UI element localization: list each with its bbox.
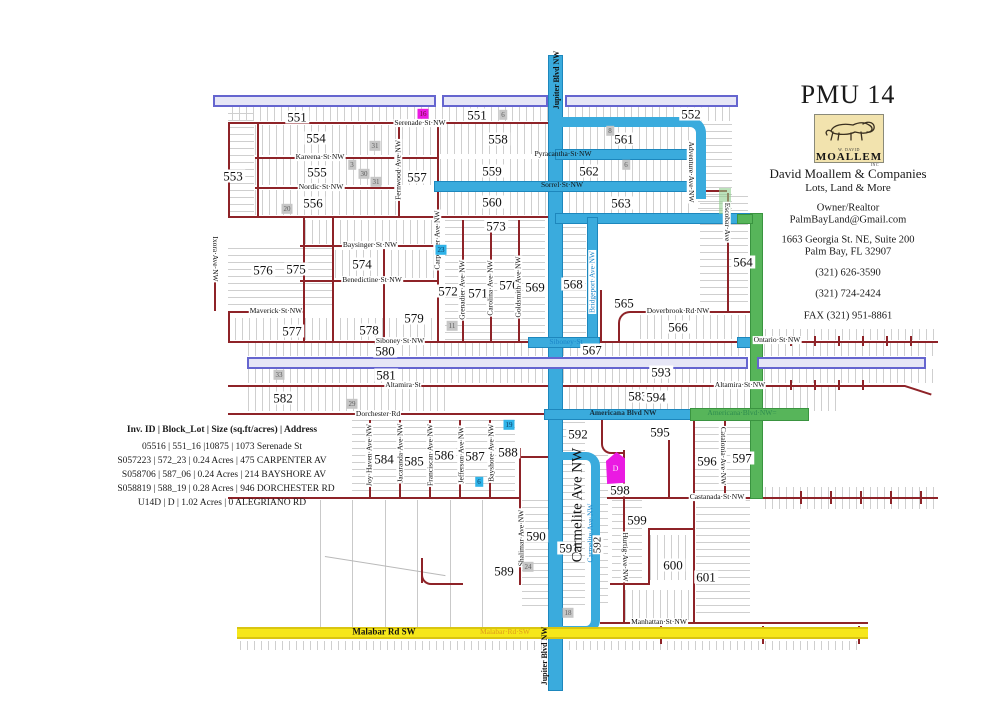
street-label-hurtig: Hurtig·Ave·NW (621, 531, 629, 582)
street-label-benedictine: Benedictine·St·NW (341, 276, 403, 284)
street-label-catalonia: Catalonia·Ave·NW (719, 426, 727, 486)
lot-marker: 18 (563, 608, 574, 618)
road-tick (830, 491, 832, 504)
road-tick (862, 336, 864, 346)
lot-marker: 11 (447, 321, 458, 331)
lot-marker: 8 (606, 126, 614, 136)
road-599-loop-top (648, 528, 693, 530)
road-595-curve (601, 418, 625, 454)
contact-role: Owner/Realtor (817, 203, 879, 214)
street-label-carmelite-small: Carmelite·Ave·NW (586, 502, 594, 563)
bar-lavender-mid-east (757, 357, 926, 369)
street-label-ontario: Ontario·St·NW (753, 336, 802, 344)
legend-row: S058819 | 588_19 | 0.28 Acres | 946 DORC… (117, 484, 334, 494)
road-tick (800, 491, 802, 504)
bar-lavender-mid-west (247, 357, 748, 369)
road-tick (920, 491, 922, 504)
block-label: 561 (612, 133, 636, 146)
street-label-shalimar: Shalimar·Ave·NW (517, 509, 525, 568)
legend-row: S058706 | 587_06 | 0.24 Acres | 214 BAYS… (122, 470, 326, 480)
street-label-malabar-black: Malabar Rd SW (351, 627, 416, 636)
block-label: 578 (357, 324, 381, 337)
legend-row: S057223 | 572_23 | 0.24 Acres | 475 CARP… (117, 456, 326, 466)
block-label: 574 (350, 258, 374, 271)
block-label: 584 (372, 453, 396, 466)
street-label-adventure: Adventure·Ave·NW (687, 140, 695, 203)
block-label: 551 (465, 109, 489, 122)
contact-fax: FAX (321) 951-8861 (804, 311, 892, 322)
lot-highlight-cyan: 6 (475, 477, 483, 487)
lot-marker: 33 (274, 370, 285, 380)
lot-grid (625, 590, 695, 620)
street-label-manhattan: Manhattan·St·NW (630, 618, 688, 626)
lot-marker: 6 (622, 160, 630, 170)
lot-grid (757, 369, 935, 383)
road-553-east-edge (257, 122, 259, 217)
street-label-bayshore: Bayshore·Ave·NW (487, 423, 495, 483)
street-label-jacaranda: Jacaranda·Ave·NW (396, 423, 404, 484)
lot-grid (255, 125, 437, 155)
road-tick (814, 380, 816, 390)
block-label: 600 (661, 559, 685, 572)
lot-marker: 31 (371, 177, 382, 187)
block-label: 551 (285, 111, 309, 124)
lot-marker: 29 (347, 399, 358, 409)
block-label: 577 (280, 325, 304, 338)
block-label: 563 (609, 197, 633, 210)
block-label: 594 (644, 391, 668, 404)
block-label: 558 (486, 133, 510, 146)
block-label: 552 (679, 108, 703, 121)
block-label: 569 (523, 281, 547, 294)
road-doverbrook-curve (618, 311, 636, 343)
road-altamira-tail (904, 385, 931, 396)
street-label-jefferson: Jefferson·Ave·NW (457, 426, 465, 485)
plat-map-flyer: 551 551 552 553 554 555 556 557 558 559 … (0, 0, 1008, 720)
road-596-west-edge (668, 440, 670, 497)
street-label-siboney-blue: Siboney·St (548, 338, 583, 346)
block-label: 587 (463, 450, 487, 463)
street-label-kareena: Kareena·St·NW (295, 153, 346, 161)
parcel-d-highlight: D (606, 452, 625, 484)
contact-phone2: (321) 724-2424 (815, 289, 881, 300)
parcel-line (385, 500, 386, 627)
block-label: 567 (580, 344, 604, 357)
lot-grid (522, 500, 548, 610)
block-label: 590 (524, 530, 548, 543)
lot-marker: 20 (282, 204, 293, 214)
road-tick (790, 380, 792, 390)
bar-lavender-top-west (213, 95, 436, 107)
block-label: 560 (480, 196, 504, 209)
road-hook-curve (421, 571, 463, 585)
page-title: PMU 14 (801, 80, 896, 110)
street-label-escobar: Escobar·Ave (723, 202, 731, 243)
lot-marker: 6 (499, 110, 507, 120)
block-label: 576 (251, 264, 275, 277)
parcel-line (352, 500, 353, 627)
contact-address-line2: Palm Bay, FL 32907 (805, 247, 891, 258)
block-label: 598 (608, 484, 632, 497)
moallem-lion-icon (819, 117, 879, 143)
lot-marker: 31 (370, 141, 381, 151)
lot-highlight-magenta: 16 (418, 109, 429, 119)
lot-grid (248, 343, 746, 356)
street-label-maverick: Maverick·St·NW (249, 307, 303, 315)
road-tick (890, 491, 892, 504)
contact-phone1: (321) 626-3590 (815, 268, 881, 279)
parcel-line (482, 500, 483, 627)
street-label-grenadier: Grenadier·Ave·NW (458, 259, 466, 320)
road-tick (838, 336, 840, 346)
block-label: 588 (496, 446, 520, 459)
road-tick (886, 336, 888, 346)
lot-marker: 24 (523, 562, 534, 572)
street-label-joyhaven: Joy·Haven·Ave·NW (365, 423, 373, 487)
bar-lavender-top-east (565, 95, 738, 107)
street-label-baysinger: Baysinger·St·NW (342, 241, 398, 249)
moallem-logo: W. DAVID MOALLEM INC (814, 114, 884, 163)
road-main-cross-st (228, 216, 558, 218)
street-label-fernwood: Fernwood·Ave·NW (394, 139, 402, 201)
block-label: 595 (648, 426, 672, 439)
bar-lavender-top-mid (442, 95, 548, 107)
street-label-pyracantha: Pyracantha·St·NW (533, 150, 592, 158)
street-label-americana: Americana Blvd NW (588, 409, 657, 417)
lot-grid (757, 343, 935, 356)
block-label: 559 (480, 165, 504, 178)
street-label-dorchester: Dorchester·Rd (355, 410, 401, 418)
street-label-nordic: Nordic·St·NW (298, 183, 345, 191)
lot-marker: 3 (348, 160, 356, 170)
block-label: 568 (561, 278, 585, 291)
road-tick (910, 336, 912, 346)
route-green-stub (737, 214, 753, 224)
block-label: 579 (402, 312, 426, 325)
contact-address-line1: 1663 Georgia St. NE, Suite 200 (781, 235, 914, 246)
company-name: David Moallem & Companies (769, 166, 926, 182)
road-castanada-st-nw (607, 497, 938, 499)
contact-email: PalmBayLand@Gmail.com (790, 215, 907, 226)
block-label: 556 (301, 197, 325, 210)
street-label-altamira: Altamira·St (384, 381, 421, 389)
street-label-sorrel: Sorrel·St·NW (540, 181, 584, 189)
block-label: 593 (649, 366, 673, 379)
street-label-jupiter-top: Jupiter Blvd NW (553, 50, 561, 111)
street-label-castanada: Castanada·St·NW (689, 493, 746, 501)
block-label: 573 (484, 220, 508, 233)
block-label: 565 (612, 297, 636, 310)
block-label: 589 (492, 565, 516, 578)
street-label-doverbrook: Doverbrook·Rd·NW (646, 307, 710, 315)
street-label-serenade: Serenade·St·NW (393, 119, 446, 127)
street-label-carpenter: Carpenter·Ave·NW (433, 210, 441, 271)
parcel-d-label: D (613, 464, 619, 473)
street-label-jupiter-bottom: Jupiter Blvd NW (541, 626, 549, 687)
lot-marker: 30 (359, 169, 370, 179)
legend-row: U14D | D | 1.02 Acres | 0 ALEGRIANO RD (138, 498, 306, 508)
road-600-601-divider (693, 420, 695, 622)
parcel-line (417, 500, 418, 627)
block-label: 601 (694, 571, 718, 584)
block-label: 572 (436, 285, 460, 298)
street-label-carolina: Carolina·Ave·NW (486, 259, 494, 316)
legend-header: Inv. ID | Block_Lot | Size (sq.ft/acres)… (127, 425, 317, 435)
street-label-goldsmith: Goldsmith·Ave·NW (514, 255, 522, 318)
road-tick (814, 336, 816, 346)
road-alachua-ave-nw (303, 217, 305, 341)
road-iroquois-ave-nw (332, 217, 334, 341)
legend-row: 05516 | 551_16 |10875 | 1073 Serenade St (142, 442, 302, 452)
road-600-loop (610, 583, 650, 585)
block-label: 597 (730, 452, 754, 465)
block-label: 575 (284, 263, 308, 276)
road-599-loop-side (648, 528, 650, 585)
parcel-line (320, 500, 321, 627)
company-tagline: Lots, Land & More (805, 182, 891, 194)
block-label: 599 (625, 514, 649, 527)
block-label: 554 (304, 132, 328, 145)
block-label: 557 (405, 171, 429, 184)
block-label: 553 (221, 170, 245, 183)
road-574-west-edge (383, 245, 385, 341)
street-label-carmelite-big: Carmelite Ave NW (571, 447, 586, 564)
block-label: 564 (731, 256, 755, 269)
street-label-siboney: Siboney·St·NW (375, 337, 425, 345)
block-label: 582 (271, 392, 295, 405)
road-kareena-st-nw (255, 157, 437, 159)
road-altamira-st (228, 385, 905, 387)
block-label: 585 (402, 455, 426, 468)
street-label-franciscan: Franciscan·Ave·NW (426, 423, 434, 487)
route-cross-st-563 (555, 213, 750, 224)
road-565-west-edge (600, 290, 602, 341)
road-tick (838, 380, 840, 390)
road-tick (860, 491, 862, 504)
block-label: 596 (695, 455, 719, 468)
street-label-malabar-orange: Malabar·Rd·SW (479, 628, 531, 636)
block-label: 566 (666, 321, 690, 334)
lot-grid (228, 248, 332, 310)
street-label-ixora: Ixora·Ave·NW (211, 235, 219, 282)
street-label-americana-green: Americana·Blvd·NW= (706, 409, 777, 417)
road-west-boundary-lower (228, 311, 230, 341)
lot-grid (696, 500, 750, 618)
street-label-altamira-nw: Altamira·St·NW (714, 381, 766, 389)
lot-grid (255, 190, 398, 215)
block-label: 555 (305, 166, 329, 179)
block-label: 586 (432, 449, 456, 462)
block-label: 592 (566, 428, 590, 441)
bar-malabar-rd-yellow (237, 627, 868, 639)
street-label-bridgeport: Bridgeport·Ave·NW (588, 250, 596, 314)
block-label: 562 (577, 165, 601, 178)
lot-grid (640, 315, 752, 339)
lot-highlight-cyan: 19 (504, 420, 515, 430)
lot-highlight-cyan: 23 (436, 245, 447, 255)
parcel-line (450, 500, 451, 627)
road-tick (862, 380, 864, 390)
block-label: 580 (373, 345, 397, 358)
